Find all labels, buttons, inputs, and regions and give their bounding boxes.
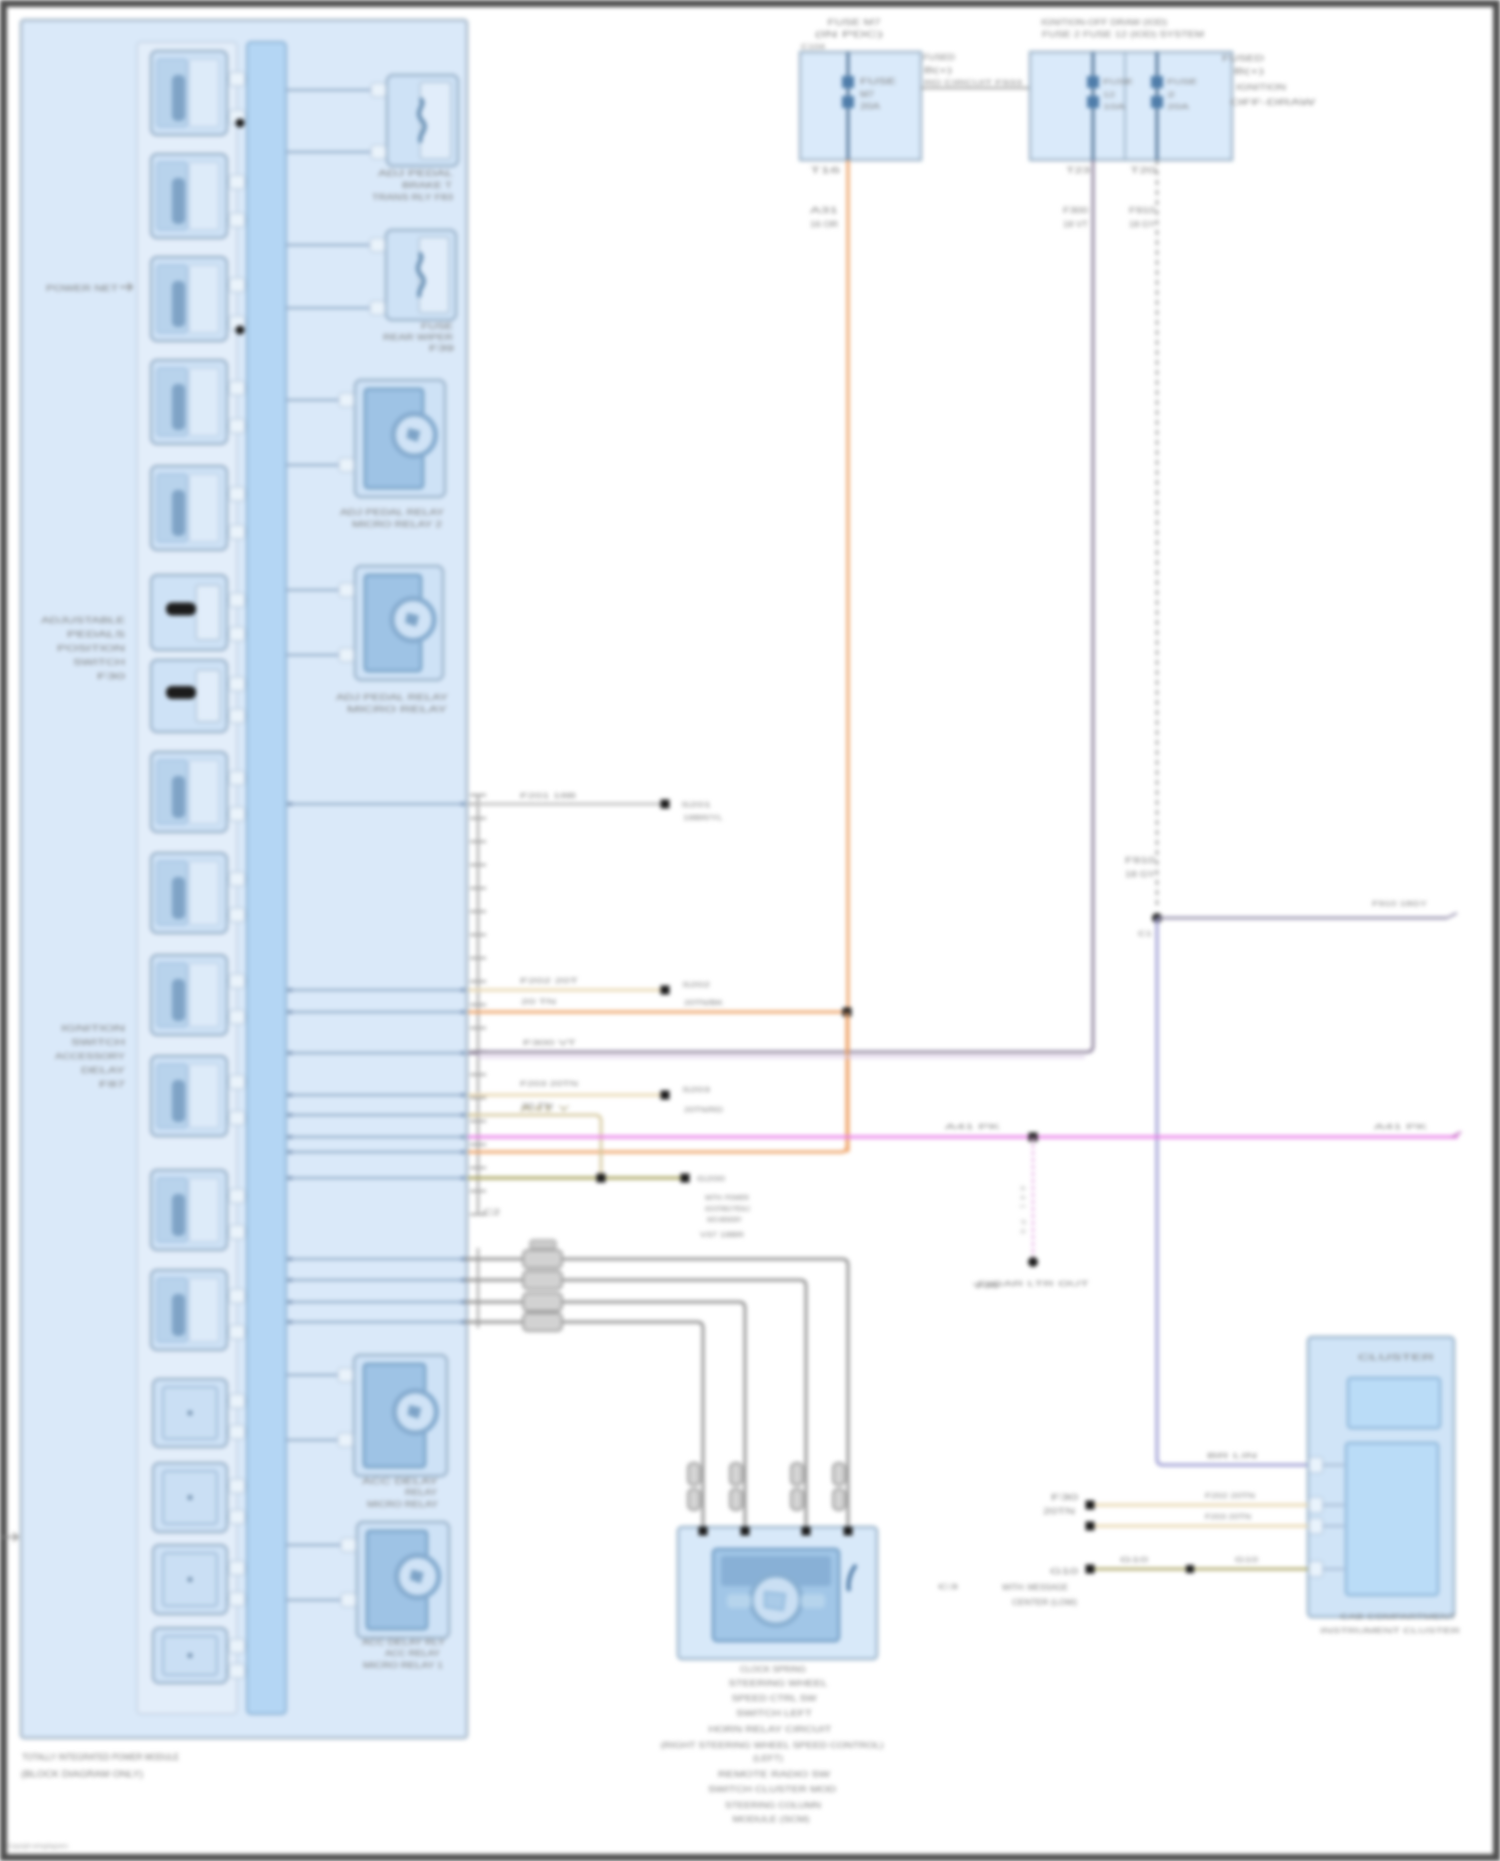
svg-text:G10: G10 [1235, 1555, 1258, 1564]
svg-text:2: 2 [1167, 90, 1175, 99]
svg-text:REAR WIPER: REAR WIPER [383, 333, 453, 342]
svg-text:F203 20TN: F203 20TN [520, 1079, 578, 1088]
svg-text:FUSED: FUSED [1222, 54, 1264, 63]
svg-text:IGNITION-OFF DRAW (IOD): IGNITION-OFF DRAW (IOD) [1041, 18, 1167, 27]
svg-text:WITH: MESSAGE: WITH: MESSAGE [1002, 1583, 1068, 1592]
svg-text:F202 20TN: F202 20TN [1205, 1491, 1255, 1500]
svg-text:G200: G200 [697, 1174, 725, 1183]
svg-text:MODULE (SCM): MODULE (SCM) [733, 1815, 810, 1824]
svg-text:TRANS RLY F83: TRANS RLY F83 [372, 193, 454, 202]
svg-text:T23: T23 [1066, 166, 1091, 175]
svg-text:F910: F910 [1129, 206, 1156, 215]
svg-text:WITH: POWER: WITH: POWER [705, 1193, 749, 1202]
svg-text:RD CIRCUIT F933: RD CIRCUIT F933 [924, 78, 1022, 87]
svg-text:CLUSTER: CLUSTER [1358, 1353, 1434, 1362]
svg-text:B(+): B(+) [1234, 67, 1265, 76]
svg-text:(LEFT): (LEFT) [753, 1754, 783, 1763]
svg-text:F39: F39 [429, 344, 455, 353]
svg-text:V36: V36 [973, 1281, 999, 1290]
svg-text:W/O MEMORY: W/O MEMORY [707, 1215, 742, 1224]
svg-text:T16: T16 [810, 166, 841, 175]
svg-text:FUSED: FUSED [923, 53, 955, 62]
svg-text:F87: F87 [99, 1080, 126, 1089]
svg-text:20TN: 20TN [1043, 1507, 1075, 1516]
svg-text:(BLOCK DIAGRAM ONLY): (BLOCK DIAGRAM ONLY) [21, 1769, 143, 1779]
svg-text:10A: 10A [1103, 102, 1125, 111]
svg-text:F300: F300 [1063, 206, 1089, 215]
svg-text:(IN PDC): (IN PDC) [815, 30, 884, 39]
svg-text:Copyright wiringdiagrams: Copyright wiringdiagrams [8, 1843, 69, 1850]
svg-text:F30: F30 [1051, 1493, 1079, 1502]
svg-text:T20: T20 [1130, 166, 1157, 175]
svg-text:FUSE: FUSE [421, 322, 453, 331]
svg-text:20 TN: 20 TN [521, 997, 556, 1006]
svg-text:FUSE: FUSE [860, 77, 896, 86]
svg-text:ADJ PEDAL RELAY: ADJ PEDAL RELAY [340, 508, 445, 517]
svg-text:INSTRUMENT CLUSTER: INSTRUMENT CLUSTER [1320, 1626, 1461, 1635]
svg-text:BRAKE T: BRAKE T [402, 181, 452, 190]
svg-text:(RIGHT STEERING WHEEL SPEED CO: (RIGHT STEERING WHEEL SPEED CONTROL) [661, 1741, 884, 1750]
svg-text:20TN/BK: 20TN/BK [684, 998, 723, 1007]
svg-text:F202 20T: F202 20T [520, 976, 579, 985]
svg-text:ACC DELAY: ACC DELAY [362, 1477, 439, 1486]
svg-text:STEERING COLUMN: STEERING COLUMN [725, 1801, 821, 1810]
svg-text:20A: 20A [1167, 102, 1189, 111]
svg-text:20A: 20A [860, 102, 881, 111]
svg-text:A41 PK: A41 PK [1019, 1186, 1026, 1234]
svg-text:IGNITION: IGNITION [61, 1024, 125, 1033]
svg-text:C3: C3 [938, 1582, 958, 1591]
svg-text:ACCESSORY: ACCESSORY [55, 1052, 126, 1061]
svg-text:A41 Y: A41 Y [520, 1104, 570, 1113]
svg-text:MICRO RELAY: MICRO RELAY [367, 1500, 439, 1509]
svg-text:18 VT: 18 VT [1063, 220, 1088, 229]
svg-text:FUSE 2 FUSE 12 (IOD) SYSTEM: FUSE 2 FUSE 12 (IOD) SYSTEM [1042, 30, 1204, 39]
svg-text:ACC DELAY RLY: ACC DELAY RLY [362, 1638, 446, 1647]
svg-text:REMOTE RADIO SW: REMOTE RADIO SW [718, 1770, 831, 1779]
svg-text:MICRO RELAY 1: MICRO RELAY 1 [363, 1661, 444, 1670]
svg-text:HORN RELAY CIRCUIT: HORN RELAY CIRCUIT [709, 1725, 832, 1734]
svg-text:RELAY: RELAY [405, 1488, 438, 1497]
svg-text:16 OR: 16 OR [810, 220, 838, 229]
svg-text:ADJ PEDAL: ADJ PEDAL [378, 169, 454, 178]
svg-text:CAB COMPARTMENT: CAB COMPARTMENT [1340, 1612, 1457, 1621]
svg-text:FUSE: FUSE [1167, 77, 1197, 86]
svg-text:G10: G10 [1120, 1555, 1148, 1564]
svg-text:18 GY: 18 GY [1125, 870, 1156, 879]
svg-text:A41 PK: A41 PK [945, 1122, 1000, 1131]
svg-text:F910: F910 [1125, 856, 1156, 865]
svg-text:CLOCK SPRING: CLOCK SPRING [740, 1665, 806, 1674]
svg-text:FUSE M7: FUSE M7 [828, 18, 882, 27]
svg-text:12: 12 [1103, 90, 1115, 99]
svg-text:POWER NET: POWER NET [46, 284, 118, 293]
svg-text:OFF-DRAW: OFF-DRAW [1230, 98, 1316, 107]
svg-text:ADJUSTABLE: ADJUSTABLE [41, 616, 125, 625]
svg-text:SWITCH: SWITCH [71, 1038, 125, 1047]
svg-text:C2: C2 [483, 1208, 501, 1217]
svg-text:POSITION: POSITION [57, 644, 125, 653]
svg-text:SWITCH: SWITCH [73, 658, 125, 667]
svg-text:A41 PK: A41 PK [1374, 1122, 1427, 1131]
svg-text:F203 20TN: F203 20TN [1205, 1512, 1251, 1521]
svg-text:F910 18GY: F910 18GY [1372, 899, 1427, 908]
svg-text:IGNITION: IGNITION [1236, 83, 1286, 92]
svg-text:SWITCH LEFT: SWITCH LEFT [736, 1709, 812, 1718]
svg-text:MICRO RELAY: MICRO RELAY [347, 705, 448, 714]
svg-text:20TN/RD: 20TN/RD [684, 1105, 724, 1114]
svg-text:18 GY: 18 GY [1129, 220, 1156, 229]
svg-text:F30: F30 [97, 672, 126, 681]
svg-text:FUSE: FUSE [1103, 77, 1133, 86]
svg-text:BR LIN: BR LIN [1207, 1451, 1257, 1460]
svg-text:M7: M7 [860, 90, 875, 99]
svg-text:G10: G10 [1050, 1567, 1079, 1576]
svg-text:PEDALS: PEDALS [67, 630, 125, 639]
svg-text:B(+): B(+) [924, 66, 953, 75]
svg-text:S203: S203 [682, 1085, 710, 1094]
svg-text:SWITCH CLUSTER MOD: SWITCH CLUSTER MOD [708, 1785, 836, 1794]
svg-text:C104: C104 [801, 44, 825, 51]
svg-text:18BR/YL: 18BR/YL [683, 813, 723, 822]
svg-text:V37 18BR: V37 18BR [700, 1230, 745, 1239]
svg-text:A31: A31 [810, 206, 839, 215]
svg-text:ADJUSTABLE PEDALS: ADJUSTABLE PEDALS [705, 1204, 750, 1213]
svg-text:TOTALLY INTEGRATED POWER MODUL: TOTALLY INTEGRATED POWER MODULE [22, 1752, 179, 1762]
svg-text:S201: S201 [681, 800, 711, 809]
svg-text:C1: C1 [1138, 929, 1152, 938]
svg-text:ACC RELAY: ACC RELAY [385, 1649, 441, 1658]
svg-text:DELAY: DELAY [81, 1066, 126, 1075]
svg-text:F300 VT: F300 VT [523, 1038, 577, 1047]
svg-text:MICRO RELAY 2: MICRO RELAY 2 [352, 520, 443, 529]
svg-text:S202: S202 [682, 980, 710, 989]
svg-text:SPEED CTRL SW: SPEED CTRL SW [732, 1694, 818, 1703]
svg-text:CENTER (LOW): CENTER (LOW) [1012, 1598, 1077, 1607]
svg-text:F201 18B: F201 18B [520, 791, 576, 800]
svg-text:STEERING WHEEL: STEERING WHEEL [729, 1679, 829, 1688]
svg-text:ADJ PEDAL RELAY: ADJ PEDAL RELAY [336, 693, 449, 702]
